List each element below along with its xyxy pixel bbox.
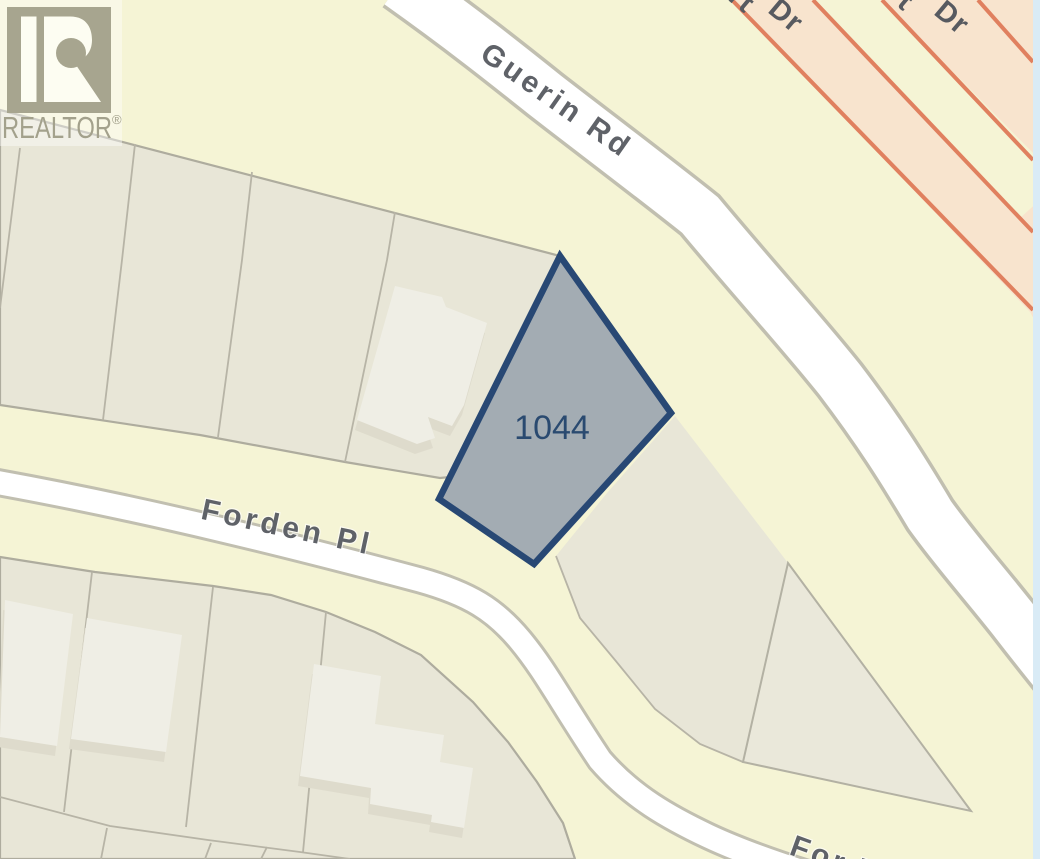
- svg-text:®: ®: [112, 112, 122, 127]
- svg-text:REALTOR: REALTOR: [2, 110, 112, 145]
- svg-text:1044: 1044: [514, 409, 590, 447]
